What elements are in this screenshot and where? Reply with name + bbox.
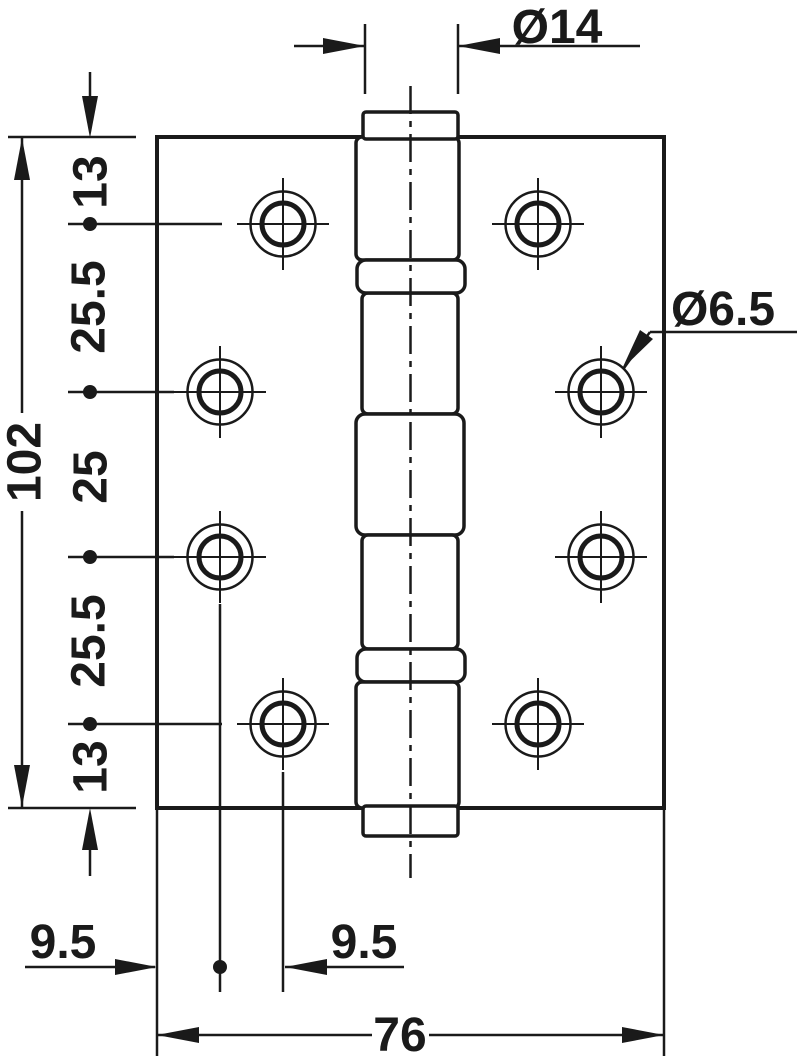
knuckle-segment xyxy=(356,682,459,808)
knuckle-segment xyxy=(356,137,459,260)
arrowhead xyxy=(82,96,98,138)
dim-label-spacing-lower: 25.5 xyxy=(63,594,116,687)
arrowhead xyxy=(285,959,327,975)
drawing-canvas: Ø14 Ø6.5 102 13 25.5 25 25.5 13 xyxy=(0,0,800,1058)
hinge-technical-drawing: Ø14 Ø6.5 102 13 25.5 25 25.5 13 xyxy=(0,0,800,1058)
chain-point xyxy=(83,717,97,731)
dim-label-total-width: 76 xyxy=(373,1009,426,1058)
dim-label-column-offset: 9.5 xyxy=(331,916,398,969)
chain-point xyxy=(213,960,227,974)
dim-label-edge-offset: 9.5 xyxy=(30,916,97,969)
arrowhead xyxy=(622,1027,664,1043)
dim-label-spacing-middle: 25 xyxy=(65,450,118,503)
dim-label-pin-diameter: Ø14 xyxy=(512,1,603,54)
arrowhead xyxy=(115,959,157,975)
arrowhead xyxy=(157,1027,199,1043)
chain-point xyxy=(83,385,97,399)
chain-point xyxy=(83,550,97,564)
arrowhead xyxy=(82,808,98,850)
dim-label-total-height: 102 xyxy=(0,422,52,502)
arrowhead xyxy=(14,765,30,807)
dim-label-bottom-edge: 13 xyxy=(65,740,118,793)
chain-point xyxy=(83,217,97,231)
dim-label-top-edge: 13 xyxy=(65,155,118,208)
dim-label-spacing-upper: 25.5 xyxy=(63,260,116,353)
arrowhead xyxy=(458,38,500,54)
arrowhead xyxy=(323,38,365,54)
dim-label-hole-diameter: Ø6.5 xyxy=(671,283,775,336)
arrowhead xyxy=(14,138,30,180)
